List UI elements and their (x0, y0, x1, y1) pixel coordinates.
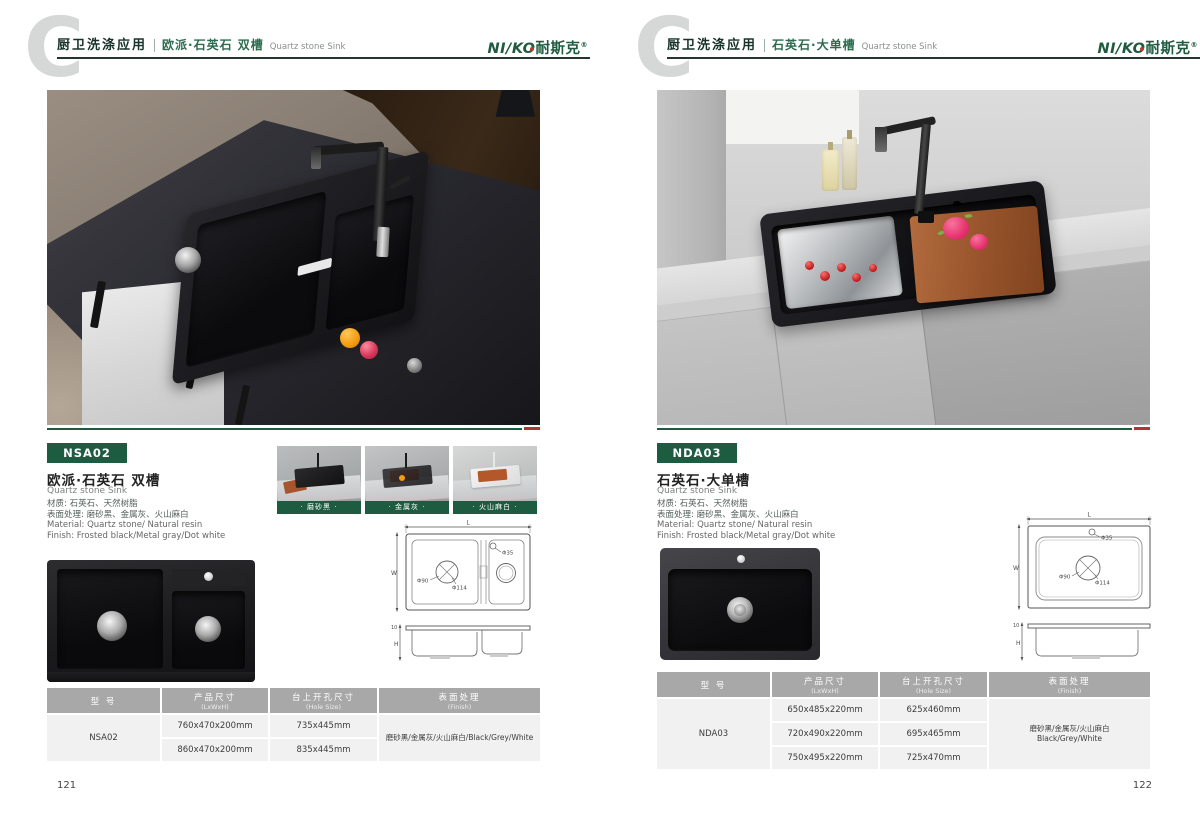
brand-logo: NI/KO耐斯克® (488, 37, 588, 58)
oil-bottle-cap (847, 130, 852, 138)
technical-drawing-double-sink: L W Φ35 Φ90 Φ114 (390, 518, 548, 670)
spec-table: 型 号 产品尺寸(LxWxH) 台上开孔尺寸(Hole Size) 表面处理(F… (47, 688, 540, 761)
color-swatches: · 磨砂黑 · · 金属灰 · · 火山麻 (277, 446, 537, 514)
sink-bowl-large (185, 191, 326, 369)
catalog-spread: C 厨卫洗涤应用 欧派·石英石 双槽 Quartz stone Sink NI/… (0, 0, 1200, 820)
header-series: 石英石·大单槽 (772, 36, 856, 53)
spec-finish-cn: 表面处理: 磨砂黑、金属灰、火山麻白 (47, 510, 225, 521)
product-specs: 材质: 石英石、天然树脂 表面处理: 磨砂黑、金属灰、火山麻白 Material… (657, 499, 835, 541)
tomato (837, 263, 846, 272)
registered-mark: ® (1191, 41, 1199, 49)
cell-hole: 735x445mm (270, 715, 377, 737)
hero-photo-double-sink (47, 90, 540, 425)
spec-finish-cn: 表面处理: 磨砂黑、金属灰、火山麻白 (657, 510, 835, 521)
brand-logo-en: NI/KO (488, 41, 536, 57)
table-header-row: 型 号 产品尺寸(LxWxH) 台上开孔尺寸(Hole Size) 表面处理(F… (47, 688, 540, 713)
swatch-label: · 磨砂黑 · (277, 501, 361, 514)
brand-logo-cn: 耐斯克 (1146, 41, 1191, 57)
faucet-pullout-head (875, 127, 887, 152)
col-holes: 625x460mm 695x465mm 725x470mm (880, 699, 987, 769)
swatch-label: · 金属灰 · (365, 501, 449, 514)
svg-text:Φ90: Φ90 (417, 579, 429, 585)
product-title-en: Quartz stone Sink (657, 486, 737, 496)
swatch-label: · 火山麻白 · (453, 501, 537, 514)
spec-table: 型 号 产品尺寸(LxWxH) 台上开孔尺寸(Hole Size) 表面处理(F… (657, 672, 1150, 769)
col-header-hole: 台上开孔尺寸(Hole Size) (270, 688, 377, 713)
separator-line-red (524, 427, 540, 430)
header-divider (154, 39, 155, 52)
col-header-model: 型 号 (657, 672, 770, 697)
swatch-dot-white: · 火山麻白 · (453, 446, 537, 514)
oil-bottle-cap (828, 142, 834, 150)
faucet-hole (204, 572, 213, 581)
registered-mark: ® (581, 41, 589, 49)
spec-material-en: Material: Quartz stone/ Natural resin (657, 520, 835, 531)
tomato (805, 261, 814, 270)
faucet-hole (737, 555, 745, 563)
svg-text:10: 10 (391, 625, 397, 631)
col-header-finish: 表面处理(Finish) (379, 688, 540, 713)
col-header-size: 产品尺寸(LxWxH) (162, 688, 268, 713)
dragon-fruit (970, 234, 988, 250)
catalog-page-right: C 厨卫洗涤应用 石英石·大单槽 Quartz stone Sink NI/KO… (640, 0, 1200, 820)
model-badge: NDA03 (657, 443, 737, 463)
tomato (852, 273, 861, 282)
cell-hole: 695x465mm (880, 723, 987, 745)
bar-stool (496, 90, 535, 117)
brand-logo-cn: 耐斯克 (536, 41, 581, 57)
separator-line-green (47, 428, 522, 430)
cell-size: 760x470x200mm (162, 715, 268, 737)
drain-icon (195, 616, 221, 642)
col-header-size: 产品尺寸(LxWxH) (772, 672, 878, 697)
svg-text:10: 10 (1013, 623, 1019, 629)
header-category: 厨卫洗涤应用 (667, 34, 757, 53)
oil-bottle (822, 149, 839, 191)
product-thumbnail-double-sink (47, 560, 255, 682)
cell-model: NSA02 (47, 715, 160, 761)
faucet-spout (311, 147, 321, 169)
catalog-page-left: C 厨卫洗涤应用 欧派·石英石 双槽 Quartz stone Sink NI/… (30, 0, 590, 820)
hero-photo-single-sink (657, 90, 1150, 425)
cell-size: 650x485x220mm (772, 699, 878, 721)
header-series-en: Quartz stone Sink (270, 42, 346, 52)
header-series: 欧派·石英石 双槽 (162, 36, 264, 53)
spec-material-cn: 材质: 石英石、天然树脂 (657, 499, 835, 510)
brand-logo: NI/KO耐斯克® (1098, 37, 1198, 58)
col-header-model: 型 号 (47, 688, 160, 713)
svg-text:Φ114: Φ114 (452, 586, 467, 592)
faucet-base (918, 211, 934, 223)
cell-hole: 725x470mm (880, 747, 987, 769)
product-specs: 材质: 石英石、天然树脂 表面处理: 磨砂黑、金属灰、火山麻白 Material… (47, 499, 225, 541)
page-number: 121 (57, 780, 76, 791)
separator-line-red (1134, 427, 1150, 430)
cell-model: NDA03 (657, 699, 770, 769)
table-header-row: 型 号 产品尺寸(LxWxH) 台上开孔尺寸(Hole Size) 表面处理(F… (657, 672, 1150, 697)
header-series-en: Quartz stone Sink (862, 42, 938, 52)
separator-line-green (657, 428, 1132, 430)
swatch-image (365, 446, 449, 501)
model-badge: NSA02 (47, 443, 127, 463)
svg-text:H: H (1016, 640, 1021, 647)
page-number: 122 (1133, 780, 1152, 791)
technical-drawing-single-sink: L W Φ35 Φ90 Φ114 10 (1012, 510, 1164, 666)
header-rule (667, 57, 1200, 59)
faucet-chrome-base (376, 227, 390, 258)
header-rule (57, 57, 590, 59)
cell-finish: 磨砂黑/金属灰/火山麻白/Black/Grey/White (379, 715, 540, 761)
drain-icon (407, 358, 422, 373)
svg-text:W: W (1013, 565, 1019, 572)
col-holes: 735x445mm 835x445mm (270, 715, 377, 761)
col-sizes: 760x470x200mm 860x470x200mm (162, 715, 268, 761)
thumb-front-edge (47, 672, 255, 682)
col-sizes: 650x485x220mm 720x490x220mm 750x495x220m… (772, 699, 878, 769)
product-title-en: Quartz stone Sink (47, 486, 127, 496)
svg-text:Φ90: Φ90 (1059, 575, 1071, 581)
product-thumbnail-single-sink (660, 548, 820, 660)
faucet-hole (953, 201, 961, 206)
spec-finish-en: Finish: Frosted black/Metal gray/Dot whi… (657, 531, 835, 542)
spec-material-en: Material: Quartz stone/ Natural resin (47, 520, 225, 531)
spec-finish-en: Finish: Frosted black/Metal gray/Dot whi… (47, 531, 225, 542)
col-header-hole: 台上开孔尺寸(Hole Size) (880, 672, 987, 697)
svg-text:Φ35: Φ35 (1101, 536, 1113, 542)
svg-text:L: L (1087, 512, 1091, 519)
cell-finish: 磨砂黑/金属灰/火山麻白 Black/Grey/White (989, 699, 1150, 769)
tomato (820, 271, 830, 281)
cell-hole: 835x445mm (270, 739, 377, 761)
table-body: NSA02 760x470x200mm 860x470x200mm 735x44… (47, 715, 540, 761)
cell-size: 750x495x220mm (772, 747, 878, 769)
cell-size: 720x490x220mm (772, 723, 878, 745)
col-header-finish: 表面处理(Finish) (989, 672, 1150, 697)
wall-light-panel (726, 90, 859, 144)
brand-logo-en: NI/KO (1098, 41, 1146, 57)
svg-text:Φ114: Φ114 (1095, 581, 1110, 587)
cell-hole: 625x460mm (880, 699, 987, 721)
page-header: 厨卫洗涤应用 欧派·石英石 双槽 Quartz stone Sink (57, 34, 345, 56)
swatch-frosted-black: · 磨砂黑 · (277, 446, 361, 514)
drain-icon (97, 611, 127, 641)
svg-text:W: W (391, 570, 397, 577)
cell-size: 860x470x200mm (162, 739, 268, 761)
header-divider (764, 39, 765, 52)
svg-text:H: H (394, 641, 399, 648)
spec-material-cn: 材质: 石英石、天然树脂 (47, 499, 225, 510)
swatch-image (277, 446, 361, 501)
svg-text:Φ35: Φ35 (502, 551, 514, 557)
oil-bottle (842, 137, 857, 191)
table-body: NDA03 650x485x220mm 720x490x220mm 750x49… (657, 699, 1150, 769)
svg-text:L: L (466, 520, 470, 527)
swatch-image (453, 446, 537, 501)
swatch-metal-gray: · 金属灰 · (365, 446, 449, 514)
page-header: 厨卫洗涤应用 石英石·大单槽 Quartz stone Sink (667, 34, 937, 56)
sink-bowl-small (326, 194, 414, 331)
header-category: 厨卫洗涤应用 (57, 34, 147, 53)
